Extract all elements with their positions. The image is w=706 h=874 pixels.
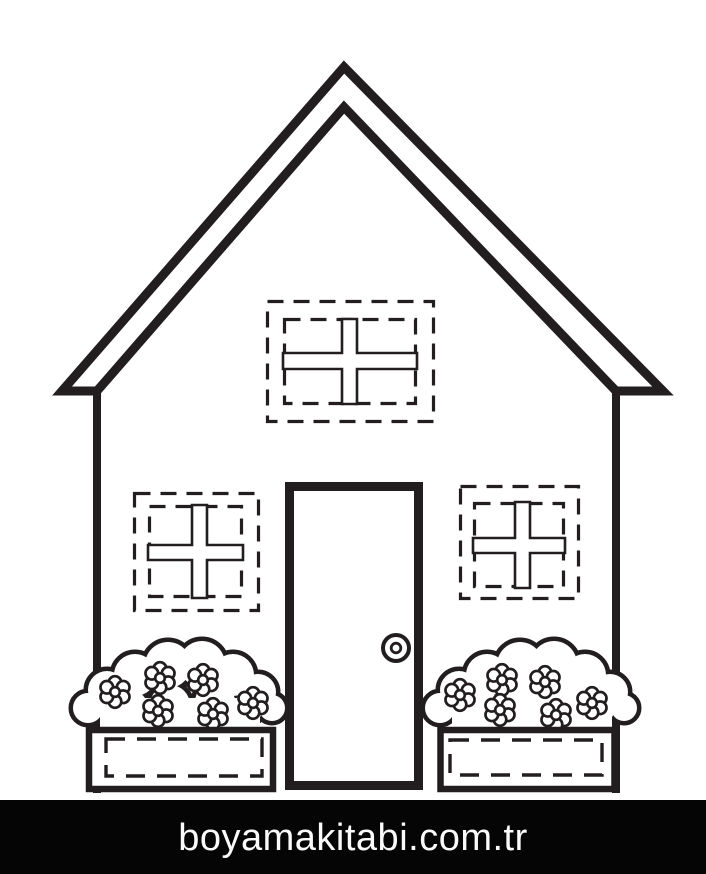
flower-icon: [531, 666, 560, 698]
flower-icon: [542, 699, 571, 731]
flower-icon: [486, 694, 515, 726]
house-line-art: [0, 0, 706, 800]
left-window-cross: [148, 505, 243, 598]
right-bush: [425, 641, 637, 731]
website-text: boyamakitabi.com.tr: [178, 815, 528, 860]
flower-icon: [144, 695, 173, 727]
flower-icon: [446, 679, 475, 711]
flower-icon: [488, 664, 517, 696]
right-window: [461, 487, 579, 599]
door: [290, 487, 419, 786]
flower-icon: [146, 662, 175, 694]
right-window-cross: [473, 502, 565, 588]
coloring-page: boyamakitabi.com.tr: [0, 0, 706, 874]
attic-window: [268, 302, 434, 422]
flower-icon: [189, 664, 218, 696]
attic-window-cross: [283, 319, 417, 404]
flower-icon: [101, 676, 130, 708]
left-flower-box: [89, 730, 273, 789]
roof-outline: [62, 67, 663, 391]
left-bush: [73, 641, 285, 730]
footer-bar: boyamakitabi.com.tr: [0, 800, 706, 874]
door-knob-center: [391, 643, 401, 653]
right-flower-box: [441, 730, 615, 789]
flower-icon: [239, 687, 268, 719]
left-window: [135, 494, 259, 611]
flower-icon: [199, 698, 228, 730]
flower-icon: [578, 687, 607, 719]
